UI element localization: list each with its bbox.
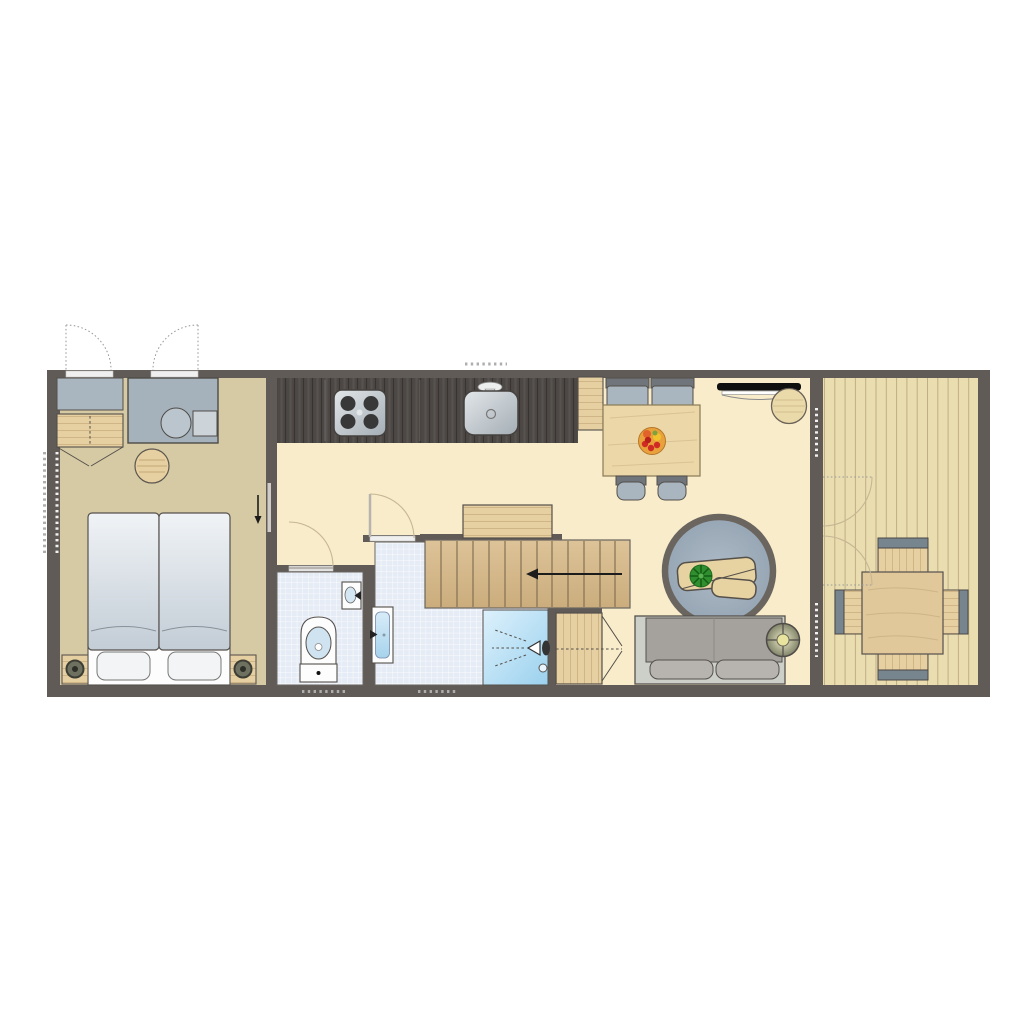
pillow-right [168,652,221,680]
nightstand-right [230,655,256,684]
kitchen [277,377,603,443]
entry-door-right-opening [151,371,198,377]
staircase [425,540,630,608]
bathroom-door-opening [370,536,415,541]
plant-icon [690,565,712,587]
wall-right [978,370,990,697]
fruit-bowl-icon [639,428,666,455]
vanity-unit [128,378,218,443]
round-stool [135,449,169,483]
entry-door-left-opening [66,371,113,377]
floor-lamp-icon [767,624,800,657]
double-bed [88,513,230,685]
outdoor-chair-bottom [878,653,928,680]
sofa-cushion-left [650,660,713,679]
tall-cabinet [578,377,603,430]
floor-plan-drawing [0,0,1024,1024]
sofa [635,616,785,684]
kitchen-counter [277,378,578,443]
corner-washbasin [342,582,361,609]
cupboard [57,378,123,410]
toilet [300,617,337,682]
outdoor-chair-top [878,538,928,573]
pillow-left [97,652,150,680]
side-pouf [772,389,807,424]
cabinet-by-stairs [463,505,552,538]
wc-room [277,572,363,685]
outdoor-table [862,572,943,654]
outdoor-chair-right [943,590,968,634]
sofa-cushion-right [716,660,779,679]
wall-bottom [47,685,990,697]
hob-icon [334,390,386,436]
shower-valve-icon [542,641,550,656]
washbasin [370,607,393,663]
shower-drain-icon [539,664,547,672]
nightstand-left [62,655,88,684]
outdoor-chair-left [835,590,862,634]
floor-plan-page [0,0,1024,1024]
shower [483,610,550,685]
entry-door-leaves [66,325,198,370]
entry-door-swings [66,325,198,370]
vanity-basin-icon [161,408,191,438]
